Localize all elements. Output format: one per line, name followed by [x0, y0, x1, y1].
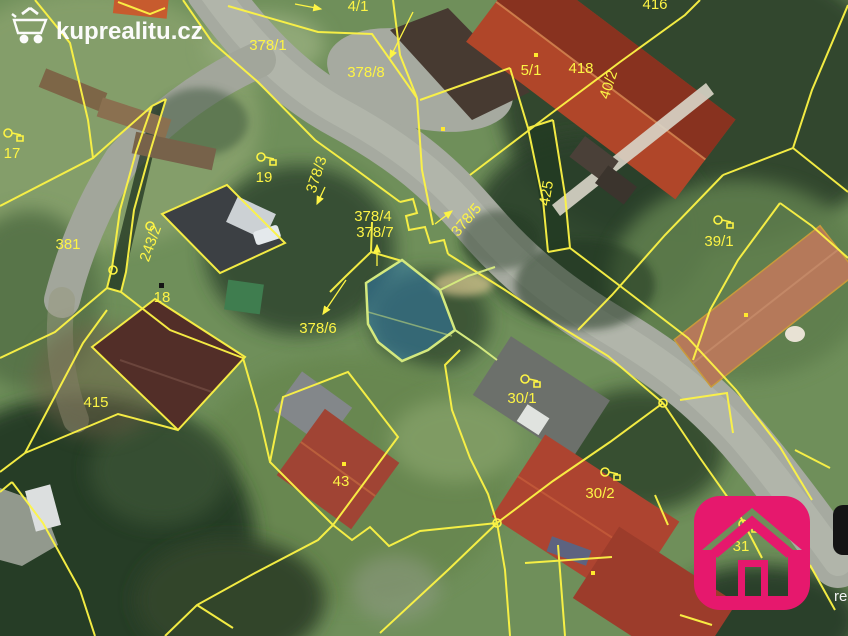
partial-brand-text: re	[834, 588, 847, 605]
parcel-label-378-1: 378/1	[249, 37, 287, 54]
parcel-label-418: 418	[568, 60, 593, 77]
parcel-label-378-6: 378/6	[299, 320, 337, 337]
map-viewport[interactable]: 378/1 4/1 378/8 5/1 418 40/2 416 17 19 3…	[0, 0, 848, 636]
parcel-label-18: 18	[154, 289, 171, 306]
parcel-label-415: 415	[83, 394, 108, 411]
corner-logo-fragment	[833, 505, 848, 555]
parcel-label-378-4: 378/4	[354, 208, 392, 225]
building-gable	[785, 326, 805, 342]
parcel-label-378-7: 378/7	[356, 224, 394, 241]
parcel-label-5-1: 5/1	[521, 62, 542, 79]
parcel-label-381: 381	[55, 236, 80, 253]
parcel-label-4-1: 4/1	[348, 0, 369, 15]
parcel-label-43: 43	[333, 473, 350, 490]
parcel-label-30-2: 30/2	[585, 485, 614, 502]
parcel-label-19: 19	[256, 169, 273, 186]
aerial-map-canvas[interactable]: 378/1 4/1 378/8 5/1 418 40/2 416 17 19 3…	[0, 0, 848, 636]
watermark-brand-text: kuprealitu.cz	[56, 18, 203, 45]
parcel-label-30-1: 30/1	[507, 390, 536, 407]
building-mark	[159, 283, 164, 288]
parcel-label-378-8: 378/8	[347, 64, 385, 81]
shed-roof	[224, 280, 264, 315]
parcel-label-17: 17	[4, 145, 21, 162]
parcel-label-39-1: 39/1	[704, 233, 733, 250]
parcel-label-416: 416	[642, 0, 667, 13]
